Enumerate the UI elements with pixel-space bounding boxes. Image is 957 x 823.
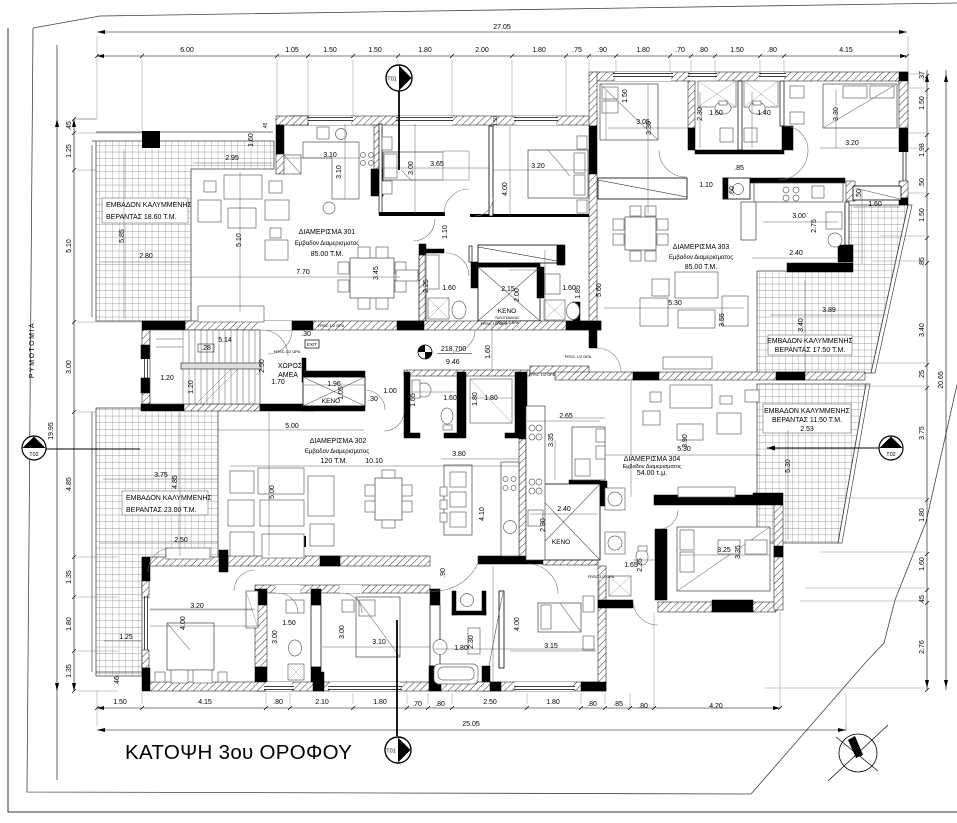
svg-text:1.85: 1.85 (575, 285, 582, 299)
svg-text:5.14: 5.14 (218, 337, 232, 344)
svg-text:ΚΕΝΟ: ΚΕΝΟ (322, 398, 340, 405)
svg-text:1.80: 1.80 (546, 699, 560, 706)
svg-text:ΥΑΛΟΠΙΝΑΚΑΣ: ΥΑΛΟΠΙΝΑΚΑΣ (495, 316, 520, 320)
svg-text:3.10: 3.10 (372, 639, 386, 646)
svg-text:7.70: 7.70 (296, 269, 310, 276)
svg-text:3.30: 3.30 (833, 107, 840, 121)
svg-text:.90: .90 (440, 568, 447, 578)
svg-text:1.10: 1.10 (442, 225, 449, 239)
svg-text:1.20: 1.20 (188, 380, 195, 394)
svg-text:ΡΥΜΟΤΟΜΙΑ: ΡΥΜΟΤΟΜΙΑ (29, 322, 36, 378)
svg-text:1.80: 1.80 (636, 47, 650, 54)
svg-text:ΒΕΡΑΝΤΑΣ 23.00 Τ.Μ.: ΒΕΡΑΝΤΑΣ 23.00 Τ.Μ. (126, 507, 197, 514)
svg-text:3.20: 3.20 (845, 140, 859, 147)
svg-text:.80: .80 (698, 47, 708, 54)
svg-text:1.00: 1.00 (383, 388, 397, 395)
svg-text:1.25: 1.25 (119, 634, 133, 641)
svg-text:3.45: 3.45 (373, 266, 380, 280)
svg-text:2.40: 2.40 (789, 250, 803, 257)
svg-text:2.50: 2.50 (259, 359, 266, 373)
svg-text:2.30: 2.30 (540, 518, 547, 532)
svg-text:.85: .85 (919, 257, 926, 267)
svg-text:1.50: 1.50 (113, 699, 127, 706)
svg-text:1.60: 1.60 (485, 345, 492, 359)
svg-text:1.25: 1.25 (66, 144, 73, 158)
svg-text:.30: .30 (301, 331, 311, 338)
svg-text:ΕΜΒΑΔΟΝ ΚΑΛΥΜΜΕΝΗΣ: ΕΜΒΑΔΟΝ ΚΑΛΥΜΜΕΝΗΣ (767, 338, 853, 345)
svg-text:1.70: 1.70 (271, 379, 285, 386)
svg-text:2.15: 2.15 (501, 286, 515, 293)
svg-text:1.50: 1.50 (919, 96, 926, 110)
svg-text:.28: .28 (201, 345, 211, 352)
svg-text:5.85: 5.85 (119, 229, 126, 243)
svg-text:ΔΙΑΜΕΡΙΣΜΑ 303: ΔΙΑΜΕΡΙΣΜΑ 303 (673, 244, 730, 251)
svg-text:2.50: 2.50 (483, 699, 497, 706)
svg-text:Εμβαδον Διαμερισματος: Εμβαδον Διαμερισματος (669, 255, 733, 261)
svg-text:ΔΙΑΜΕΡΙΣΜΑ 304: ΔΙΑΜΕΡΙΣΜΑ 304 (624, 456, 681, 463)
svg-text:10.10: 10.10 (365, 458, 383, 465)
svg-text:FRSC 1/2 ΩΡΑ: FRSC 1/2 ΩΡΑ (274, 349, 301, 354)
svg-text:85.00 Τ.Μ.: 85.00 Τ.Μ. (685, 264, 718, 271)
svg-text:1.50: 1.50 (622, 89, 629, 103)
svg-text:2.10: 2.10 (315, 699, 329, 706)
svg-text:1.80: 1.80 (373, 699, 387, 706)
svg-text:3.00: 3.00 (339, 625, 346, 639)
svg-text:2.65: 2.65 (559, 413, 573, 420)
svg-text:.50: .50 (919, 178, 926, 188)
svg-text:.85: .85 (613, 701, 623, 708)
svg-text:ΚΑΤΟΨΗ 3ου ΟΡΟΦΟΥ: ΚΑΤΟΨΗ 3ου ΟΡΟΦΟΥ (125, 741, 352, 764)
svg-text:2.30: 2.30 (697, 107, 704, 121)
svg-text:.80: .80 (435, 701, 445, 708)
svg-text:1.10: 1.10 (699, 182, 713, 189)
svg-text:1.60: 1.60 (919, 557, 926, 571)
svg-text:1.98: 1.98 (919, 143, 926, 157)
svg-text:54.00 τ.μ.: 54.00 τ.μ. (637, 470, 667, 477)
svg-text:1.80: 1.80 (484, 395, 498, 402)
svg-text:2.00: 2.00 (514, 288, 521, 302)
svg-text:FRSC 1/2 ΩΡΑ: FRSC 1/2 ΩΡΑ (318, 323, 345, 328)
svg-text:.25: .25 (919, 370, 926, 380)
svg-text:.80: .80 (273, 699, 283, 706)
svg-text:T01: T01 (386, 749, 395, 755)
svg-text:1.80: 1.80 (532, 47, 546, 54)
svg-text:2.75: 2.75 (811, 219, 818, 233)
svg-text:5.10: 5.10 (236, 233, 243, 247)
svg-text:ΚΕΝΟ: ΚΕΝΟ (552, 539, 570, 546)
svg-text:1.60: 1.60 (442, 285, 456, 292)
svg-text:.80: .80 (587, 701, 597, 708)
svg-text:ΕΜΒΑΔΟΝ ΚΑΛΥΜΜΕΝΗΣ: ΕΜΒΑΔΟΝ ΚΑΛΥΜΜΕΝΗΣ (764, 408, 850, 415)
svg-text:.80: .80 (638, 703, 648, 710)
svg-text:.70: .70 (412, 701, 422, 708)
svg-text:1.50: 1.50 (323, 47, 337, 54)
svg-text:.46: .46 (114, 676, 121, 686)
svg-text:1.05: 1.05 (285, 47, 299, 54)
svg-text:.75: .75 (572, 47, 582, 54)
svg-text:1.60: 1.60 (248, 133, 255, 147)
svg-text:2.76: 2.76 (919, 640, 926, 654)
svg-text:1.50: 1.50 (919, 208, 926, 222)
svg-text:1.60: 1.60 (562, 285, 576, 292)
svg-text:ΕΜΒΑΔΟΝ ΚΑΛΥΜΜΕΝΗΣ: ΕΜΒΑΔΟΝ ΚΑΛΥΜΜΕΝΗΣ (106, 202, 192, 209)
svg-text:4.00: 4.00 (180, 616, 187, 630)
svg-text:FRSC 1/2 ΩΡΑ: FRSC 1/2 ΩΡΑ (529, 372, 556, 377)
svg-text:1.50: 1.50 (368, 47, 382, 54)
svg-text:4.85: 4.85 (66, 477, 73, 491)
svg-text:3.25: 3.25 (717, 547, 731, 554)
svg-text:ΚΕΝΟ: ΚΕΝΟ (498, 308, 516, 315)
svg-text:2.95: 2.95 (225, 155, 239, 162)
svg-text:6.00: 6.00 (180, 47, 194, 54)
svg-text:3.40: 3.40 (919, 323, 926, 337)
svg-text:3.40: 3.40 (798, 318, 805, 332)
svg-text:2.53: 2.53 (800, 426, 814, 433)
svg-text:3.75: 3.75 (154, 472, 168, 479)
svg-text:ΒΕΡΑΝΤΑΣ 18.60 Τ.Μ.: ΒΕΡΑΝΤΑΣ 18.60 Τ.Μ. (106, 214, 177, 221)
svg-text:T02: T02 (886, 452, 895, 458)
svg-text:1.60: 1.60 (868, 201, 882, 208)
svg-text:.80: .80 (767, 47, 777, 54)
svg-text:1.80: 1.80 (919, 508, 926, 522)
svg-text:2.80: 2.80 (139, 253, 153, 260)
svg-text:3.75: 3.75 (919, 426, 926, 440)
svg-text:.45: .45 (919, 595, 926, 605)
svg-text:5.30: 5.30 (668, 300, 682, 307)
svg-text:3.35: 3.35 (548, 433, 555, 447)
svg-text:ΒΕΡΑΝΤΑΣ 11.50 Τ.Μ.: ΒΕΡΑΝΤΑΣ 11.50 Τ.Μ. (772, 417, 842, 424)
svg-text:1.50: 1.50 (282, 620, 296, 627)
svg-text:3.10: 3.10 (336, 165, 343, 179)
svg-text:Εμβαδον Διαμερισματος: Εμβαδον Διαμερισματος (305, 449, 369, 455)
svg-text:5.00: 5.00 (269, 485, 276, 499)
svg-text:3.00: 3.00 (272, 630, 279, 644)
svg-text:1.80: 1.80 (472, 392, 479, 406)
svg-text:3.00: 3.00 (66, 360, 73, 374)
svg-text:1.80: 1.80 (66, 617, 73, 631)
svg-text:120 Τ.Μ.: 120 Τ.Μ. (321, 458, 348, 465)
svg-text:ΔΙΑΜΕΡΙΣΜΑ 301: ΔΙΑΜΕΡΙΣΜΑ 301 (299, 229, 356, 236)
svg-text:5.60: 5.60 (596, 283, 603, 297)
svg-text:25.05: 25.05 (462, 721, 480, 728)
svg-text:1.80: 1.80 (454, 645, 468, 652)
svg-text:2.25: 2.25 (423, 279, 430, 293)
svg-text:5.00: 5.00 (285, 423, 299, 430)
svg-text:3.65: 3.65 (430, 161, 444, 168)
svg-text:T02: T02 (29, 452, 38, 458)
svg-text:27.05: 27.05 (493, 24, 511, 31)
svg-text:.45: .45 (66, 121, 73, 131)
svg-text:FRSC 1/2 ΩΡΑ: FRSC 1/2 ΩΡΑ (565, 354, 592, 359)
svg-text:85.00 Τ.Μ.: 85.00 Τ.Μ. (311, 251, 344, 258)
svg-text:2.30: 2.30 (468, 635, 475, 649)
svg-text:4.00: 4.00 (502, 182, 509, 196)
svg-text:4.20: 4.20 (709, 703, 723, 710)
svg-text:2.00: 2.00 (475, 47, 489, 54)
svg-text:.70: .70 (675, 47, 685, 54)
svg-text:3.90: 3.90 (682, 434, 689, 448)
svg-text:3.80: 3.80 (452, 451, 466, 458)
svg-text:.90: .90 (597, 47, 607, 54)
svg-text:9.46: 9.46 (446, 359, 460, 366)
svg-text:ΔΙΑΜΕΡΙΣΜΑ 302: ΔΙΑΜΕΡΙΣΜΑ 302 (310, 438, 367, 445)
svg-text:4.15: 4.15 (839, 47, 853, 54)
svg-text:.37: .37 (919, 71, 926, 81)
svg-text:T01: T01 (387, 77, 396, 83)
svg-text:.85: .85 (734, 165, 744, 172)
svg-text:218.700: 218.700 (441, 346, 466, 353)
svg-text:3.55: 3.55 (719, 313, 726, 327)
svg-text:1.20: 1.20 (160, 375, 174, 382)
svg-text:3.35: 3.35 (735, 545, 742, 559)
svg-text:5.10: 5.10 (66, 239, 73, 253)
svg-text:3.20: 3.20 (531, 163, 545, 170)
svg-text:1.50: 1.50 (493, 116, 499, 126)
svg-text:5.30: 5.30 (785, 459, 792, 473)
svg-text:1.65: 1.65 (624, 562, 638, 569)
svg-text:.60: .60 (729, 186, 736, 196)
svg-text:4.85: 4.85 (172, 475, 179, 489)
svg-text:ΧΩΡΟΣ: ΧΩΡΟΣ (278, 363, 303, 370)
svg-text:ΑΜΕΑ: ΑΜΕΑ (278, 372, 298, 379)
svg-text:2.40: 2.40 (557, 506, 571, 513)
svg-text:.45: .45 (263, 122, 269, 129)
svg-text:FRSC 1/2 ΩΡΑ: FRSC 1/2 ΩΡΑ (481, 321, 508, 326)
svg-text:ΕΜΒΑΔΟΝ ΚΑΛΥΜΜΕΝΗΣ: ΕΜΒΑΔΟΝ ΚΑΛΥΜΜΕΝΗΣ (126, 495, 212, 502)
svg-text:20.65: 20.65 (938, 371, 945, 389)
svg-text:1.80: 1.80 (418, 47, 432, 54)
svg-text:1.35: 1.35 (66, 570, 73, 584)
svg-text:FRSC 1/2 ΩΡΑ: FRSC 1/2 ΩΡΑ (588, 574, 615, 579)
svg-text:3.00: 3.00 (792, 213, 806, 220)
svg-text:1.60: 1.60 (709, 110, 723, 117)
svg-text:1.50: 1.50 (730, 47, 744, 54)
svg-text:4.10: 4.10 (479, 507, 486, 521)
svg-text:19.95: 19.95 (48, 422, 55, 440)
svg-text:1.60: 1.60 (443, 395, 457, 402)
svg-text:1.65: 1.65 (410, 393, 417, 407)
svg-text:.30: .30 (368, 396, 378, 403)
svg-text:Εμβαδον Διαμερισματος: Εμβαδον Διαμερισματος (295, 241, 359, 247)
svg-text:1.40: 1.40 (757, 110, 771, 117)
svg-text:1.35: 1.35 (66, 664, 73, 678)
svg-text:4.15: 4.15 (198, 699, 212, 706)
svg-text:EXIT: EXIT (307, 342, 317, 347)
svg-text:ΒΕΡΑΝΤΑΣ 17.50 Τ.Μ.: ΒΕΡΑΝΤΑΣ 17.50 Τ.Μ. (775, 347, 846, 354)
svg-text:3.89: 3.89 (822, 307, 836, 314)
svg-text:4.00: 4.00 (514, 617, 521, 631)
